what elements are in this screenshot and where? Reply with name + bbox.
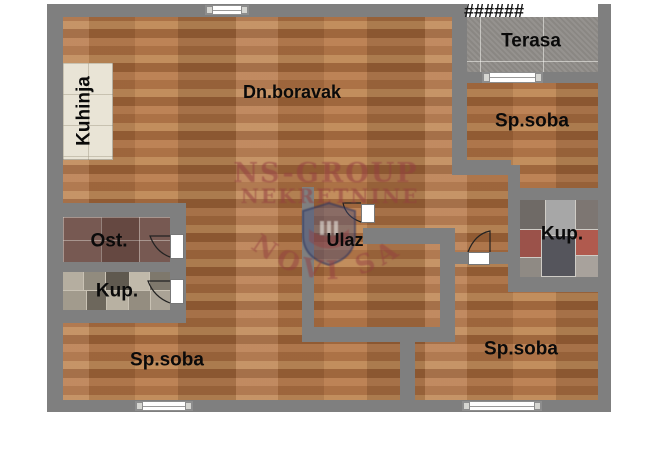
room-label-kup-left: Kup. (96, 282, 138, 301)
room-label-ulaz: Ulaz (326, 231, 363, 249)
room-label-sp-soba-top-right: Sp.soba (495, 112, 569, 131)
room-label-sp-soba-bottom-right: Sp.soba (484, 340, 558, 359)
room-label-dn-boravak: Dn.boravak (243, 83, 341, 101)
door-swing-bath-left (148, 281, 170, 303)
room-label-sp-soba-bottom-left: Sp.soba (130, 351, 204, 370)
room-label-ost: Ost. (91, 232, 128, 251)
terrace-hatch-marks: ###### (464, 2, 524, 20)
room-label-terasa: Terasa (501, 32, 561, 51)
door-swing-bedroom-right (468, 231, 490, 252)
room-label-kup-right: Kup. (541, 225, 583, 244)
door-swing-entry (343, 203, 361, 222)
floor-plan-page: { "plan": { "colors": { "wall": "#7f7f7f… (0, 0, 657, 461)
door-swing-pantry (150, 236, 170, 257)
room-label-kuhinja: Kuhinja (75, 76, 94, 146)
floor-plan: NS-GROUP NEKRETNINE NOVI SAD ###### Kuhi… (0, 0, 657, 461)
